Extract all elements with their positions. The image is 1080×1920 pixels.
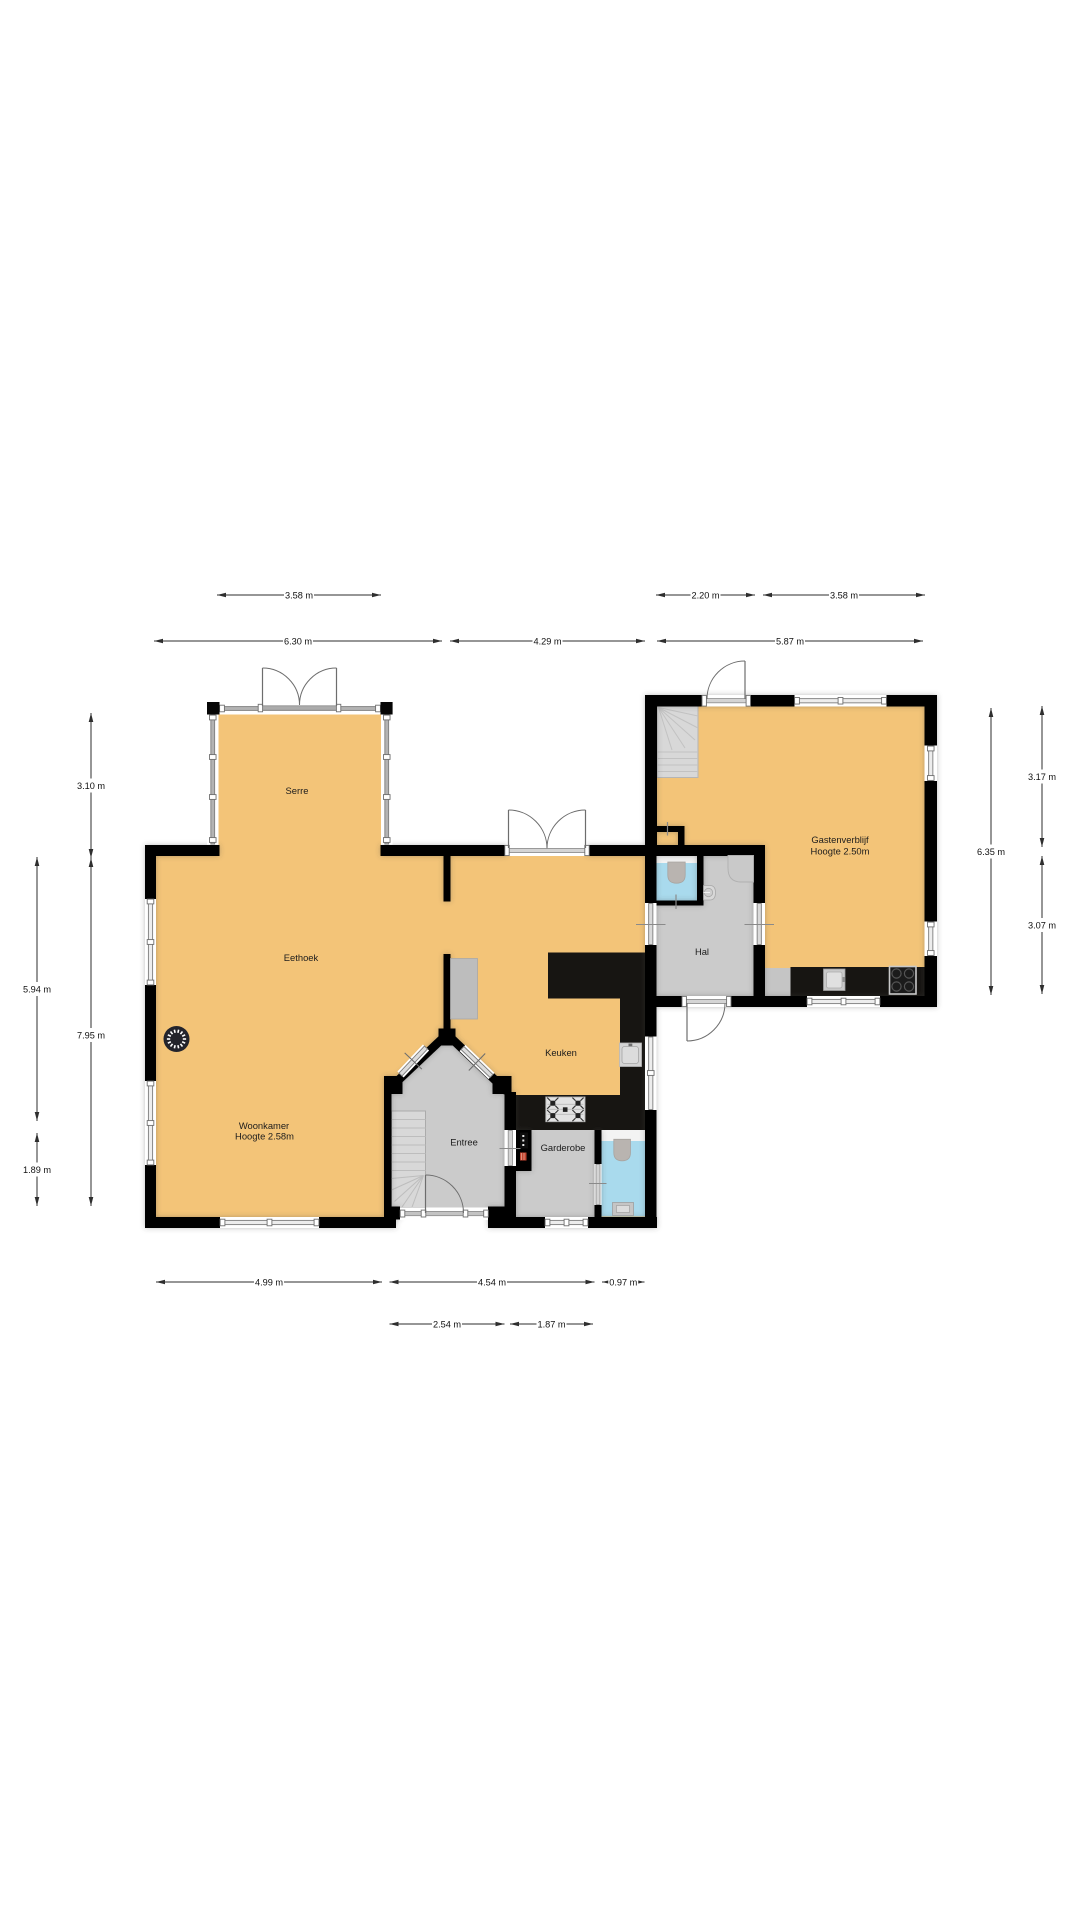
svg-text:0.97 m: 0.97 m [609,1277,637,1287]
svg-text:3.07 m: 3.07 m [1028,920,1056,930]
svg-text:1.89 m: 1.89 m [23,1165,51,1175]
svg-text:2.54 m: 2.54 m [433,1319,461,1329]
svg-text:Serre: Serre [286,785,309,796]
svg-text:4.99 m: 4.99 m [255,1277,283,1287]
svg-text:3.58 m: 3.58 m [285,590,313,600]
svg-text:6.35 m: 6.35 m [977,847,1005,857]
svg-text:5.87 m: 5.87 m [776,636,804,646]
svg-text:3.17 m: 3.17 m [1028,772,1056,782]
svg-text:3.10 m: 3.10 m [77,781,105,791]
svg-text:4.29 m: 4.29 m [533,636,561,646]
svg-text:Entree: Entree [450,1137,478,1148]
svg-text:Hoogte 2.50m: Hoogte 2.50m [811,846,870,857]
svg-text:7.95 m: 7.95 m [77,1030,105,1040]
svg-text:3.58 m: 3.58 m [830,590,858,600]
svg-text:4.54 m: 4.54 m [478,1277,506,1287]
svg-text:5.94 m: 5.94 m [23,984,51,994]
svg-text:2.20 m: 2.20 m [691,590,719,600]
svg-text:Hoogte 2.58m: Hoogte 2.58m [235,1131,294,1142]
svg-text:Eethoek: Eethoek [284,952,319,963]
svg-text:Gastenverblijf: Gastenverblijf [811,834,869,845]
svg-text:Garderobe: Garderobe [541,1142,586,1153]
svg-text:Keuken: Keuken [545,1047,577,1058]
svg-text:1.87 m: 1.87 m [537,1319,565,1329]
svg-text:6.30 m: 6.30 m [284,636,312,646]
svg-text:Woonkamer: Woonkamer [239,1120,289,1131]
svg-text:Hal: Hal [695,946,709,957]
